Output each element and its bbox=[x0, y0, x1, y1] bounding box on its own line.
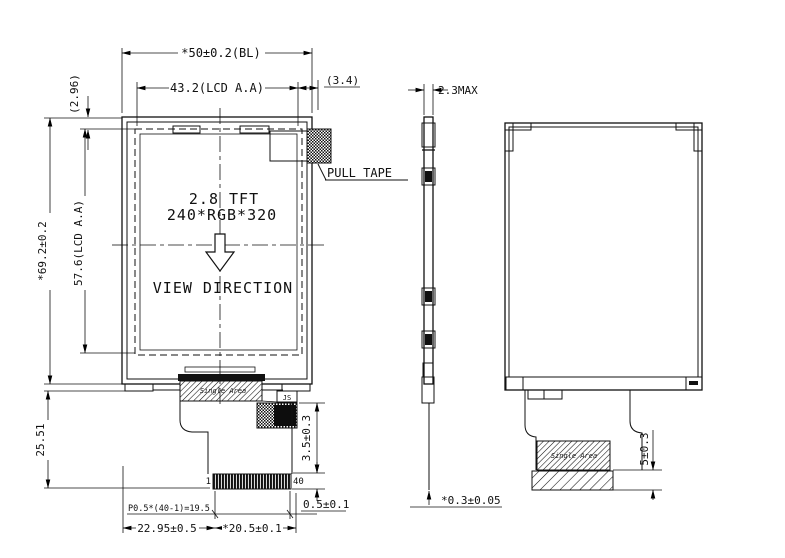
display-resolution-text: 240*RGB*320 bbox=[167, 206, 277, 224]
pull-tape-leader bbox=[318, 164, 326, 180]
dim-thickness: 2.3MAX bbox=[438, 84, 478, 97]
connector-40pin bbox=[213, 474, 291, 489]
dim-connector-width: *20.5±0.1 bbox=[222, 522, 282, 535]
dim-pin-pitch: P0.5*(40-1)=19.5 bbox=[128, 504, 210, 514]
dim-overall-height: *69.2±0.2 bbox=[36, 221, 49, 281]
rear-connector-bar bbox=[532, 471, 613, 490]
fog-black-bar bbox=[178, 374, 265, 381]
side-view bbox=[422, 117, 435, 490]
rear-bottom-tab1 bbox=[528, 390, 544, 399]
ic-box-label: JS bbox=[283, 394, 291, 402]
tape-anchor-rect bbox=[270, 131, 308, 161]
marking-block bbox=[274, 405, 296, 426]
dim-stiffener-height: 5±0.3 bbox=[638, 432, 651, 465]
rear-stiffener-label: Single Area bbox=[551, 452, 597, 460]
lcd-engineering-drawing: Single Area JS 1 40 2.8 TFT 240*RGB*320 … bbox=[0, 0, 785, 558]
rear-fpc-left-edge bbox=[525, 390, 536, 470]
pull-tape-label: PULL TAPE bbox=[327, 166, 392, 180]
dim-fpc-length: 25.51 bbox=[34, 423, 47, 456]
bonding-area-label: Single Area bbox=[200, 387, 246, 395]
bottom-step-right bbox=[282, 384, 310, 391]
rear-view: Single Area bbox=[505, 123, 702, 490]
view-direction-arrow-icon bbox=[206, 234, 234, 271]
rear-corner-tabs bbox=[505, 123, 702, 390]
rear-bottom-tab2 bbox=[544, 390, 562, 399]
dim-aa-height: 57.6(LCD A.A) bbox=[72, 200, 85, 286]
dim-fpc-width: 22.95±0.5 bbox=[137, 522, 197, 535]
view-direction-text: VIEW DIRECTION bbox=[153, 279, 293, 297]
dim-right-margin: (3.4) bbox=[326, 74, 359, 87]
fpc-left-edge bbox=[180, 401, 208, 474]
dim-overall-width: *50±0.2(BL) bbox=[181, 46, 260, 60]
rear-inner-outline bbox=[509, 127, 698, 377]
pin-1-label: 1 bbox=[206, 477, 211, 487]
dim-connector-stub: 0.5±0.1 bbox=[303, 498, 349, 511]
bottom-step-left bbox=[125, 384, 153, 391]
dim-connector-offset: 3.5±0.3 bbox=[300, 415, 313, 461]
pin-40-label: 40 bbox=[293, 477, 304, 487]
bezel-tab-right bbox=[240, 126, 269, 133]
dim-aa-width: 43.2(LCD A.A) bbox=[170, 81, 264, 95]
pull-tape-block bbox=[307, 129, 331, 163]
drawing-canvas: Single Area JS 1 40 2.8 TFT 240*RGB*320 … bbox=[0, 0, 785, 558]
front-view: Single Area JS 1 40 2.8 TFT 240*RGB*320 … bbox=[112, 108, 408, 489]
dim-top-margin: (2.96) bbox=[68, 74, 81, 114]
dim-fpc-thickness: *0.3±0.05 bbox=[441, 494, 501, 507]
rear-outline bbox=[505, 123, 702, 390]
